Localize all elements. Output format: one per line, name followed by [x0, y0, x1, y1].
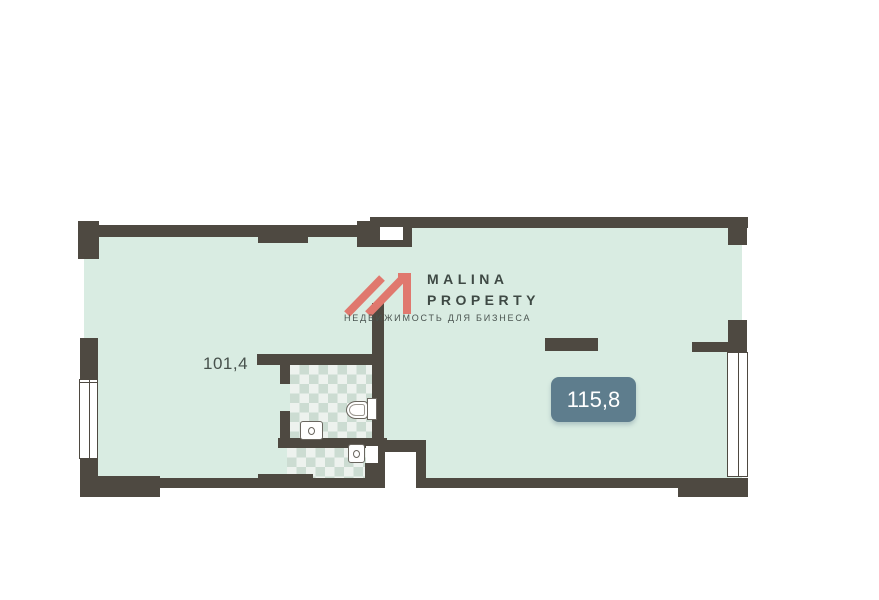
wc-door-opening — [366, 446, 378, 463]
wall-segment — [370, 217, 748, 228]
left-room-area-label: 101,4 — [203, 354, 248, 374]
wall-segment — [416, 452, 426, 480]
wall-segment — [82, 225, 385, 237]
wall-segment — [258, 474, 313, 488]
malina-property-logo: MALINA PROPERTY НЕДВИЖИМОСТЬ ДЛЯ БИЗНЕСА — [341, 266, 541, 328]
wall-segment — [365, 463, 378, 478]
window — [79, 379, 98, 459]
logo-line1: MALINA — [427, 269, 508, 290]
wall-segment — [257, 354, 384, 365]
wall-segment — [280, 365, 290, 384]
wall-segment — [280, 411, 290, 438]
wall-segment — [728, 217, 747, 245]
wall-segment — [692, 342, 728, 352]
sink-icon — [300, 421, 323, 440]
window — [727, 352, 748, 477]
right-room-area-badge: 115,8 — [551, 377, 636, 422]
floor-plan: 101,4 115,8 MALINA PROPERTY НЕДВИЖИМОСТЬ… — [0, 0, 879, 600]
malina-m-icon — [341, 268, 419, 318]
wall-segment — [678, 478, 748, 497]
logo-tagline: НЕДВИЖИМОСТЬ ДЛЯ БИЗНЕСА — [344, 313, 531, 323]
toilet-icon — [346, 401, 368, 419]
wall-segment — [80, 338, 98, 380]
wall-segment — [258, 228, 308, 243]
wall-segment — [378, 440, 426, 452]
shaft-niche — [380, 227, 403, 240]
logo-line2: PROPERTY — [427, 290, 540, 311]
entrance-opening — [385, 452, 416, 488]
wall-segment — [78, 221, 99, 259]
wall-segment — [378, 452, 385, 480]
wall-segment — [728, 320, 747, 352]
sink-icon — [348, 444, 365, 463]
wall-segment — [545, 338, 598, 351]
toilet-tank-icon — [367, 398, 377, 420]
